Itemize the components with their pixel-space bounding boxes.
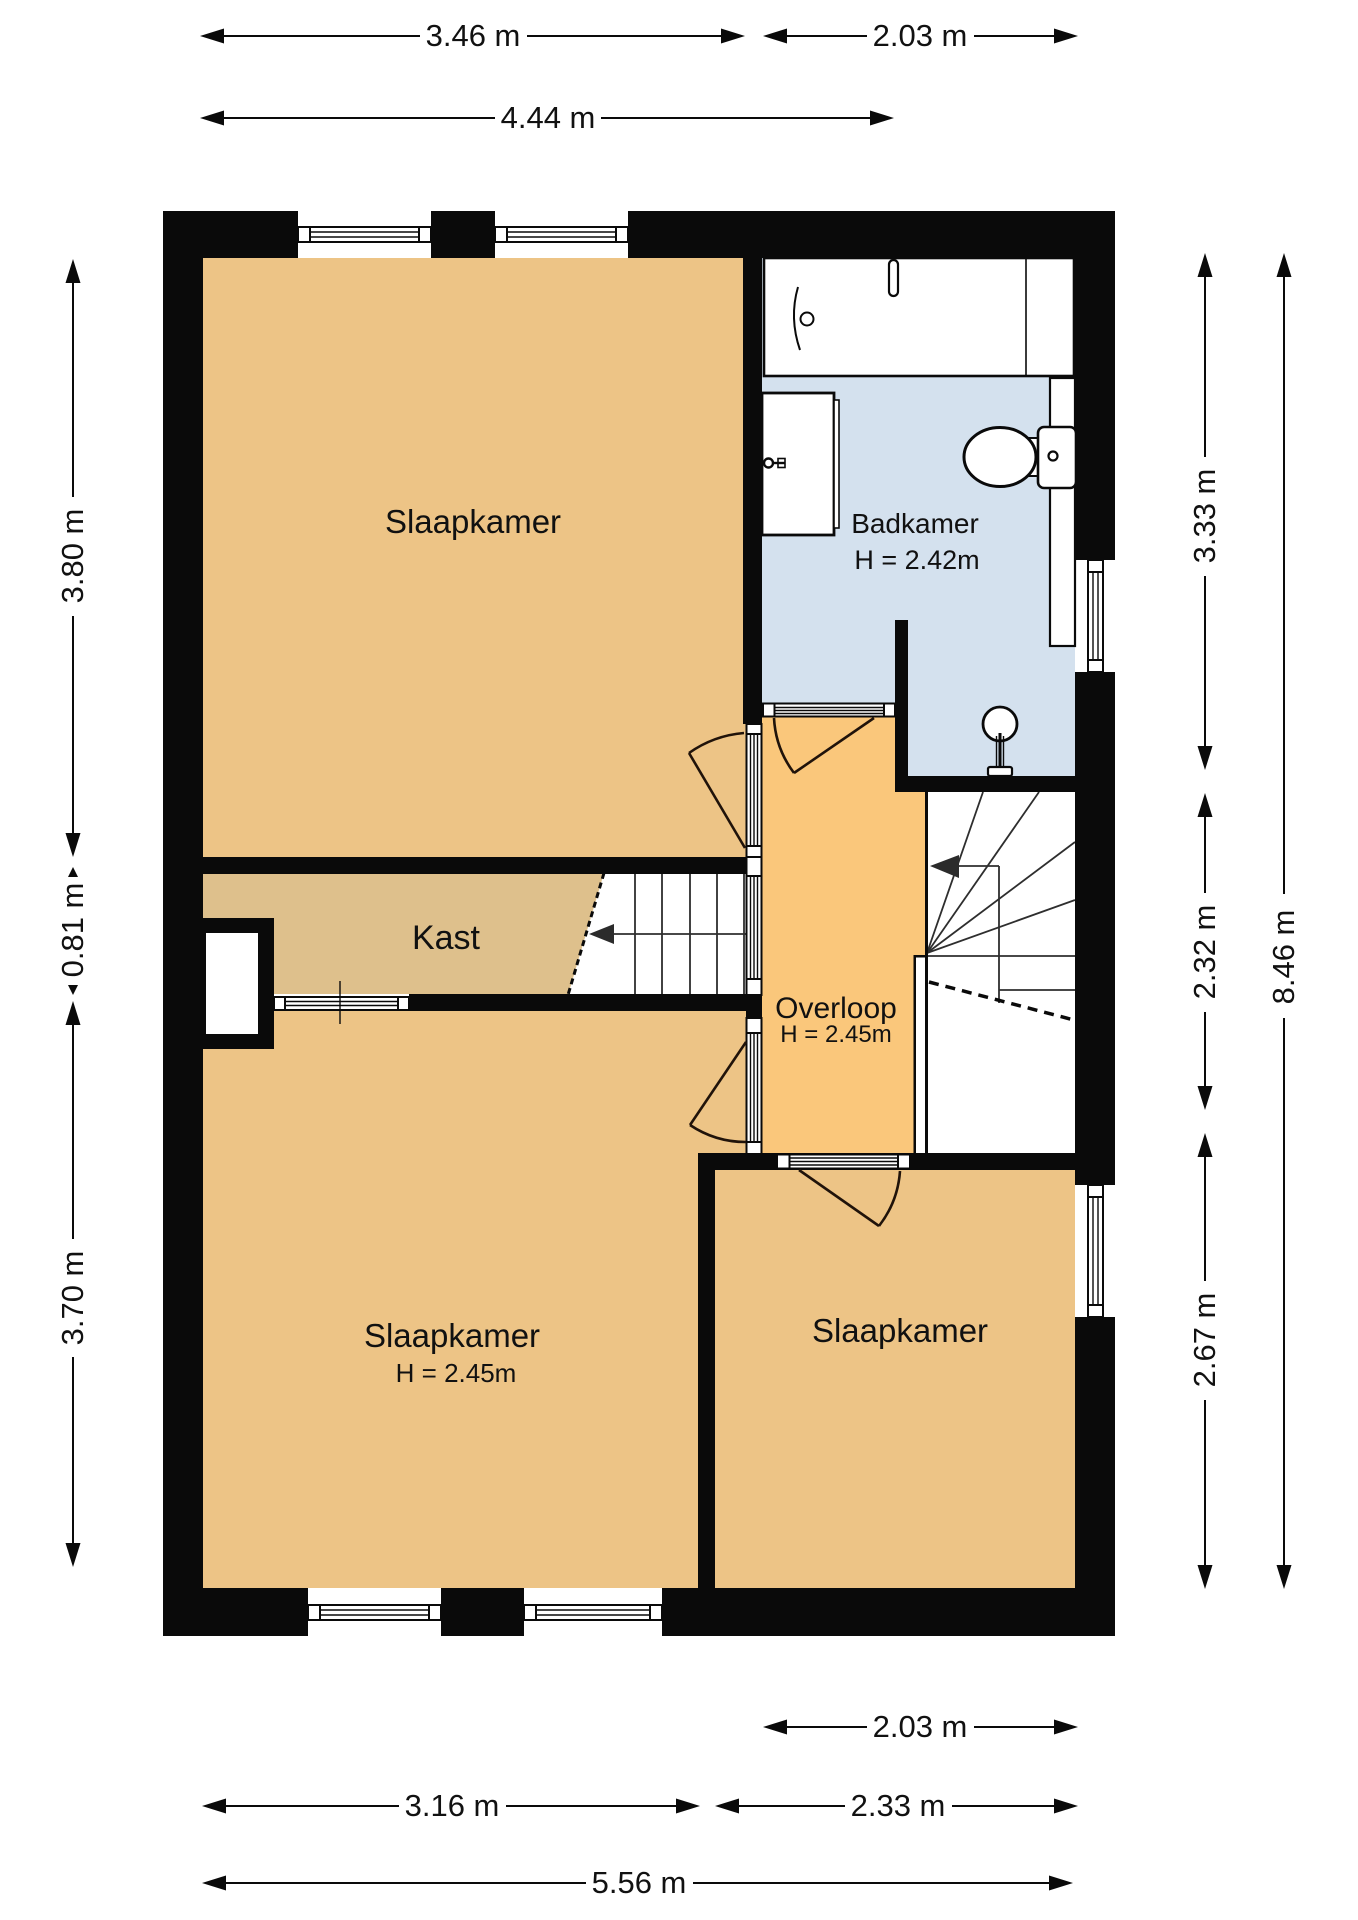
svg-text:5.56 m: 5.56 m [592,1865,687,1900]
svg-text:4.44 m: 4.44 m [501,100,596,135]
svg-text:H = 2.45m: H = 2.45m [396,1358,517,1388]
svg-text:Slaapkamer: Slaapkamer [364,1317,540,1354]
svg-text:2.33 m: 2.33 m [851,1788,946,1823]
svg-text:3.46 m: 3.46 m [426,18,521,53]
svg-text:2.67 m: 2.67 m [1187,1293,1222,1388]
svg-text:8.46 m: 8.46 m [1266,910,1301,1005]
svg-text:H = 2.42m: H = 2.42m [854,545,979,575]
svg-text:3.16 m: 3.16 m [405,1788,500,1823]
svg-text:2.32 m: 2.32 m [1187,905,1222,1000]
svg-text:3.80 m: 3.80 m [55,509,90,604]
svg-text:0.81 m: 0.81 m [55,883,90,978]
svg-text:Badkamer: Badkamer [851,508,979,539]
svg-text:Slaapkamer: Slaapkamer [385,503,561,540]
svg-text:3.70 m: 3.70 m [55,1251,90,1346]
svg-text:2.03 m: 2.03 m [873,18,968,53]
svg-text:Kast: Kast [412,919,481,957]
svg-text:H = 2.45m: H = 2.45m [780,1021,891,1048]
svg-text:3.33 m: 3.33 m [1187,469,1222,564]
svg-text:Slaapkamer: Slaapkamer [812,1312,988,1349]
svg-text:2.03 m: 2.03 m [873,1709,968,1744]
